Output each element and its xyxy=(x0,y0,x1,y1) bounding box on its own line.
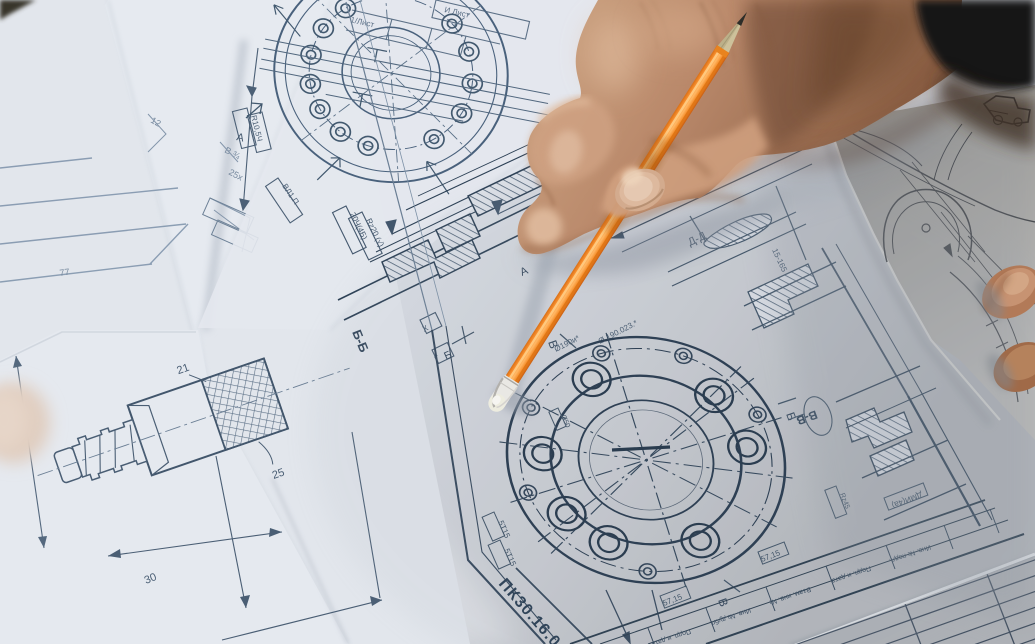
svg-text:77: 77 xyxy=(59,267,70,278)
